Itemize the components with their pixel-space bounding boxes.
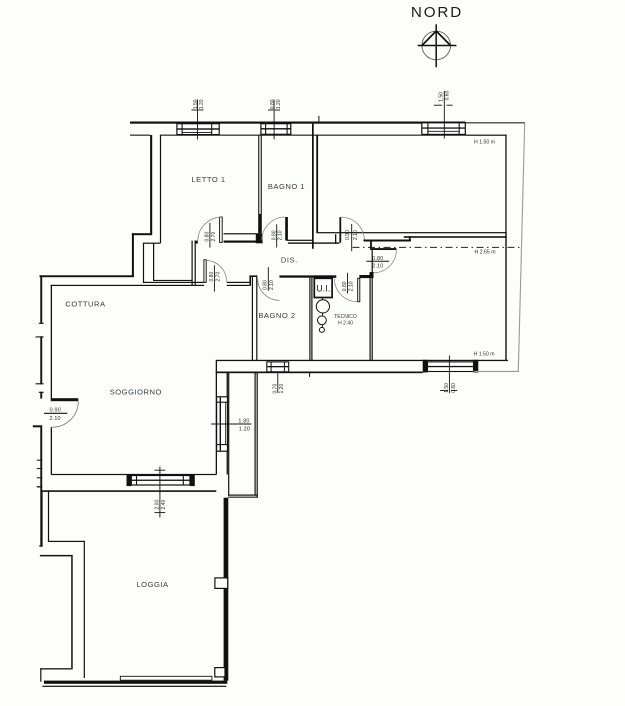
svg-text:1.20: 1.20 — [276, 99, 282, 109]
svg-text:2.10: 2.10 — [349, 281, 355, 291]
svg-text:0.90: 0.90 — [50, 408, 61, 414]
svg-text:1.50: 1.50 — [444, 383, 450, 393]
svg-text:0.90: 0.90 — [345, 230, 351, 240]
svg-text:2.00: 2.00 — [155, 500, 161, 510]
svg-text:H 2.65 m: H 2.65 m — [475, 250, 496, 256]
svg-text:2.10: 2.10 — [269, 280, 275, 290]
svg-text:H 1.50 m: H 1.50 m — [474, 139, 495, 145]
svg-text:2.70: 2.70 — [211, 232, 217, 242]
svg-text:0.80: 0.80 — [271, 230, 277, 240]
svg-text:0.80: 0.80 — [342, 281, 348, 291]
svg-text:0.70: 0.70 — [273, 384, 279, 394]
svg-text:0.80: 0.80 — [209, 272, 215, 282]
svg-text:0.80: 0.80 — [263, 280, 269, 290]
svg-text:BAGNO 2: BAGNO 2 — [258, 311, 295, 320]
svg-text:2.10: 2.10 — [49, 416, 60, 422]
svg-text:COTTURA: COTTURA — [65, 300, 106, 309]
svg-text:SOGGIORNO: SOGGIORNO — [110, 387, 162, 396]
svg-text:U.I.: U.I. — [316, 284, 330, 294]
svg-text:1.20: 1.20 — [279, 384, 285, 394]
svg-text:H 1.50 m: H 1.50 m — [474, 352, 495, 358]
svg-text:LOGGIA: LOGGIA — [136, 580, 169, 589]
svg-text:TECNICO: TECNICO — [334, 314, 357, 320]
svg-text:1.50: 1.50 — [438, 92, 444, 102]
svg-text:1.80: 1.80 — [238, 419, 249, 425]
svg-text:2.10: 2.10 — [278, 230, 284, 240]
svg-text:2.10: 2.10 — [353, 230, 359, 240]
svg-text:0.80: 0.80 — [205, 232, 211, 242]
svg-text:BAGNO 1: BAGNO 1 — [268, 182, 305, 191]
svg-text:1.20: 1.20 — [199, 99, 205, 109]
svg-text:H 2.40: H 2.40 — [338, 320, 353, 326]
svg-text:2.40: 2.40 — [161, 500, 167, 510]
svg-text:2.70: 2.70 — [215, 272, 221, 282]
svg-text:LETTO 1: LETTO 1 — [191, 175, 225, 184]
svg-text:2.10: 2.10 — [372, 264, 383, 270]
svg-text:0.60: 0.60 — [451, 383, 457, 393]
svg-text:NORD: NORD — [411, 4, 463, 21]
svg-text:1.20: 1.20 — [239, 426, 250, 432]
svg-text:0.60: 0.60 — [445, 90, 451, 100]
svg-text:DIS.: DIS. — [281, 256, 298, 265]
